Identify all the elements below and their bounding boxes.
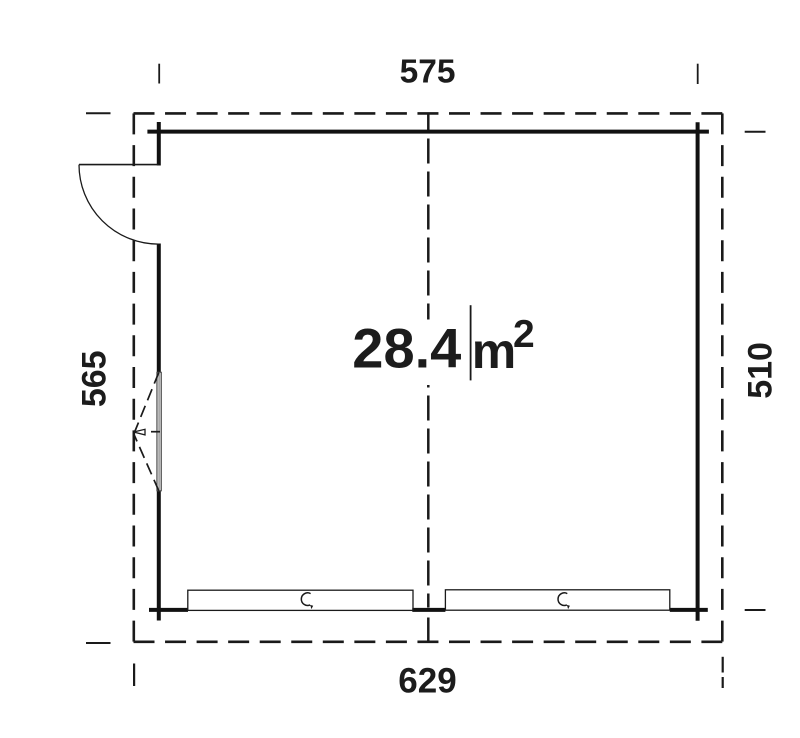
svg-text:510: 510: [742, 342, 780, 399]
svg-text:575: 575: [400, 53, 456, 90]
svg-text:629: 629: [398, 662, 456, 701]
svg-text:2: 2: [513, 313, 535, 356]
svg-text:m: m: [472, 323, 516, 379]
svg-text:28.4: 28.4: [352, 316, 461, 379]
svg-text:565: 565: [76, 350, 114, 407]
